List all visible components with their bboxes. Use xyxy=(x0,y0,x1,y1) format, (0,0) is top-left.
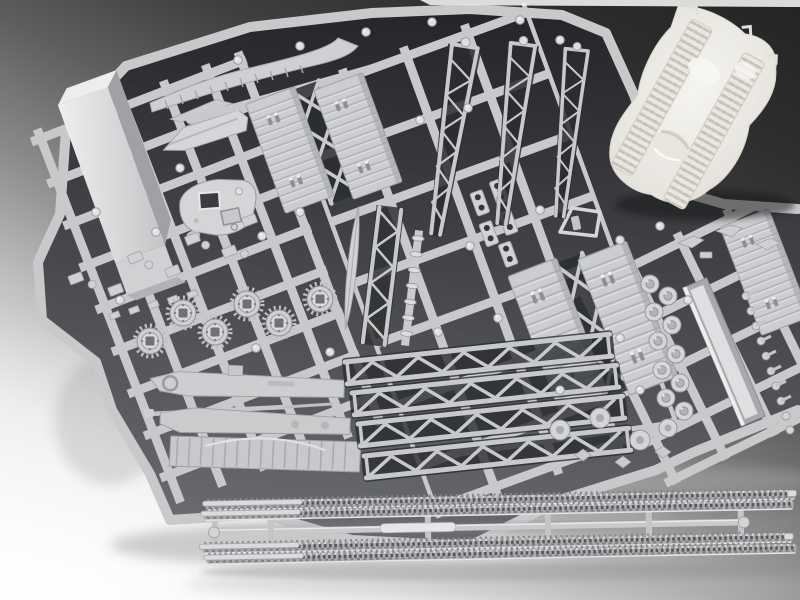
screenshot-canvas xyxy=(0,0,800,600)
terrain-shadow xyxy=(615,190,795,220)
photo xyxy=(0,0,800,600)
runner-label-plate xyxy=(380,522,456,532)
hull-side-parts xyxy=(144,363,361,476)
